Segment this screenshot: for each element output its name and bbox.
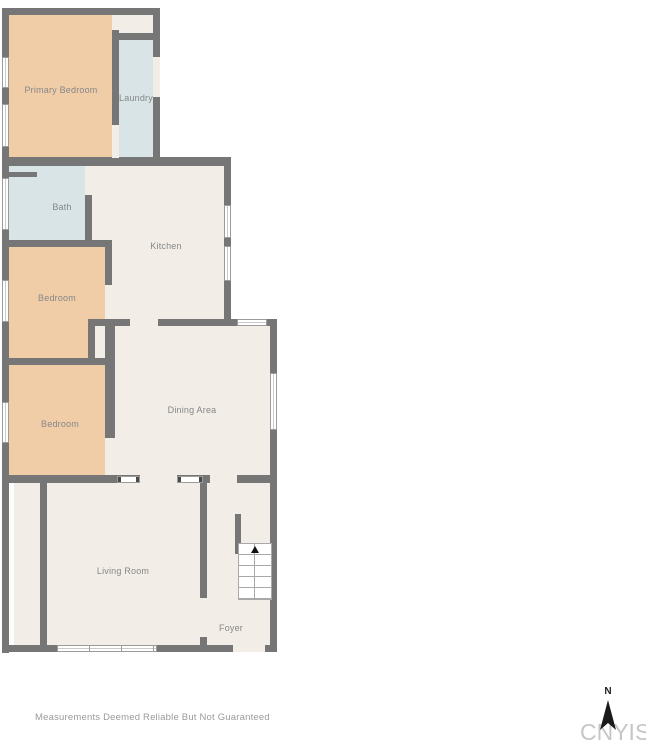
window [2, 57, 9, 88]
room-dining-fill [115, 326, 270, 475]
door-opening [105, 438, 115, 475]
room-closet-fill [119, 15, 153, 33]
window [237, 319, 267, 326]
door-opening [153, 57, 160, 97]
side-porch-glass [9, 483, 14, 645]
hall-closet-fill [95, 326, 105, 358]
wall [9, 172, 37, 177]
window [2, 280, 9, 322]
door-opening [140, 475, 177, 483]
door-opening [200, 598, 207, 637]
room-label-living: Living Room [97, 566, 149, 576]
window [2, 104, 9, 147]
room-label-kitchen: Kitchen [150, 241, 181, 251]
room-label-foyer: Foyer [219, 623, 243, 633]
compass-needle-icon [596, 699, 620, 731]
wall [2, 358, 112, 365]
wall [105, 326, 115, 438]
door-opening [85, 166, 92, 195]
room-label-bath: Bath [52, 202, 71, 212]
door-opening [130, 319, 158, 326]
staircase [238, 543, 272, 600]
room-label-bedroom-upper: Bedroom [38, 293, 76, 303]
door-opening [210, 475, 237, 483]
window [224, 205, 231, 238]
window [224, 246, 231, 281]
window [270, 373, 277, 430]
room-label-dining: Dining Area [168, 405, 217, 415]
door-opening [112, 125, 119, 158]
window [57, 645, 157, 652]
room-bath-fill [9, 166, 85, 240]
floor-plan: Primary Bedroom Laundry Bath Kitchen Bed… [0, 0, 646, 742]
wall [270, 319, 277, 652]
wall [2, 157, 231, 166]
wall [40, 483, 47, 645]
room-label-laundry: Laundry [119, 93, 153, 103]
disclaimer-text: Measurements Deemed Reliable But Not Gua… [35, 712, 270, 723]
room-living-fill [47, 483, 200, 645]
room-kitchen-fill [92, 166, 224, 247]
wall [105, 247, 112, 285]
wall [2, 240, 112, 247]
wall [85, 195, 92, 240]
window [2, 178, 9, 230]
room-label-primary-bedroom: Primary Bedroom [24, 85, 97, 95]
wall [112, 33, 160, 40]
room-kitchen-fill [112, 247, 224, 319]
front-door-opening [233, 645, 265, 652]
compass-north-label: N [600, 686, 616, 697]
door-symbol [117, 476, 140, 483]
door-opening [105, 285, 112, 319]
stairs-up-arrow-icon [251, 546, 259, 553]
door-opening [112, 15, 119, 30]
door-symbol [177, 476, 203, 483]
wall [200, 637, 207, 645]
window [2, 402, 9, 443]
wall [112, 30, 119, 125]
wall [200, 483, 207, 598]
room-label-bedroom-lower: Bedroom [41, 419, 79, 429]
wall [2, 8, 160, 15]
